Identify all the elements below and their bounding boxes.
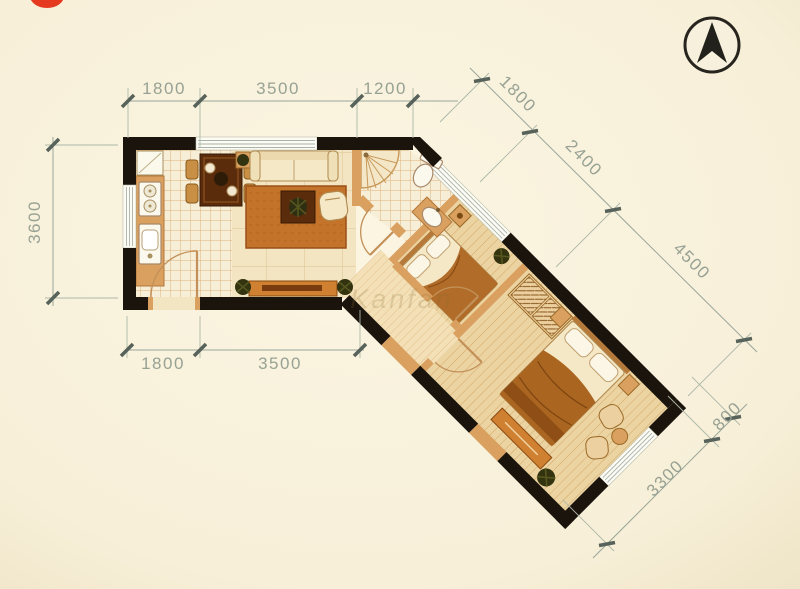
dim-label: 3500 <box>256 79 300 98</box>
faucet <box>436 208 440 212</box>
dim-label: 1800 <box>141 354 185 373</box>
dim-label: 3600 <box>25 200 44 244</box>
kitchen <box>136 151 164 286</box>
plate <box>205 163 215 173</box>
north-arrow-icon <box>685 18 739 72</box>
plant <box>237 154 249 166</box>
dim-label: 3500 <box>258 354 302 373</box>
dining-chair <box>186 160 198 179</box>
centerpiece <box>214 172 228 186</box>
bathroom-wall <box>352 150 361 206</box>
floor-plan-canvas: Kanfan 1800 3500 1200 3600 1800 3500 <box>0 0 800 589</box>
dim-label: 1800 <box>142 79 186 98</box>
dining-chair <box>186 184 198 203</box>
armchair <box>318 190 349 221</box>
armchair <box>585 436 609 460</box>
dim-label: 1200 <box>363 79 407 98</box>
floor-plan-page: Kanfan 1800 3500 1200 3600 1800 3500 <box>0 0 800 589</box>
watermark: Kanfan <box>350 284 454 314</box>
shower-head <box>364 153 369 158</box>
window <box>196 137 317 150</box>
tv <box>262 285 322 291</box>
plate <box>227 186 237 196</box>
faucet <box>148 254 153 259</box>
